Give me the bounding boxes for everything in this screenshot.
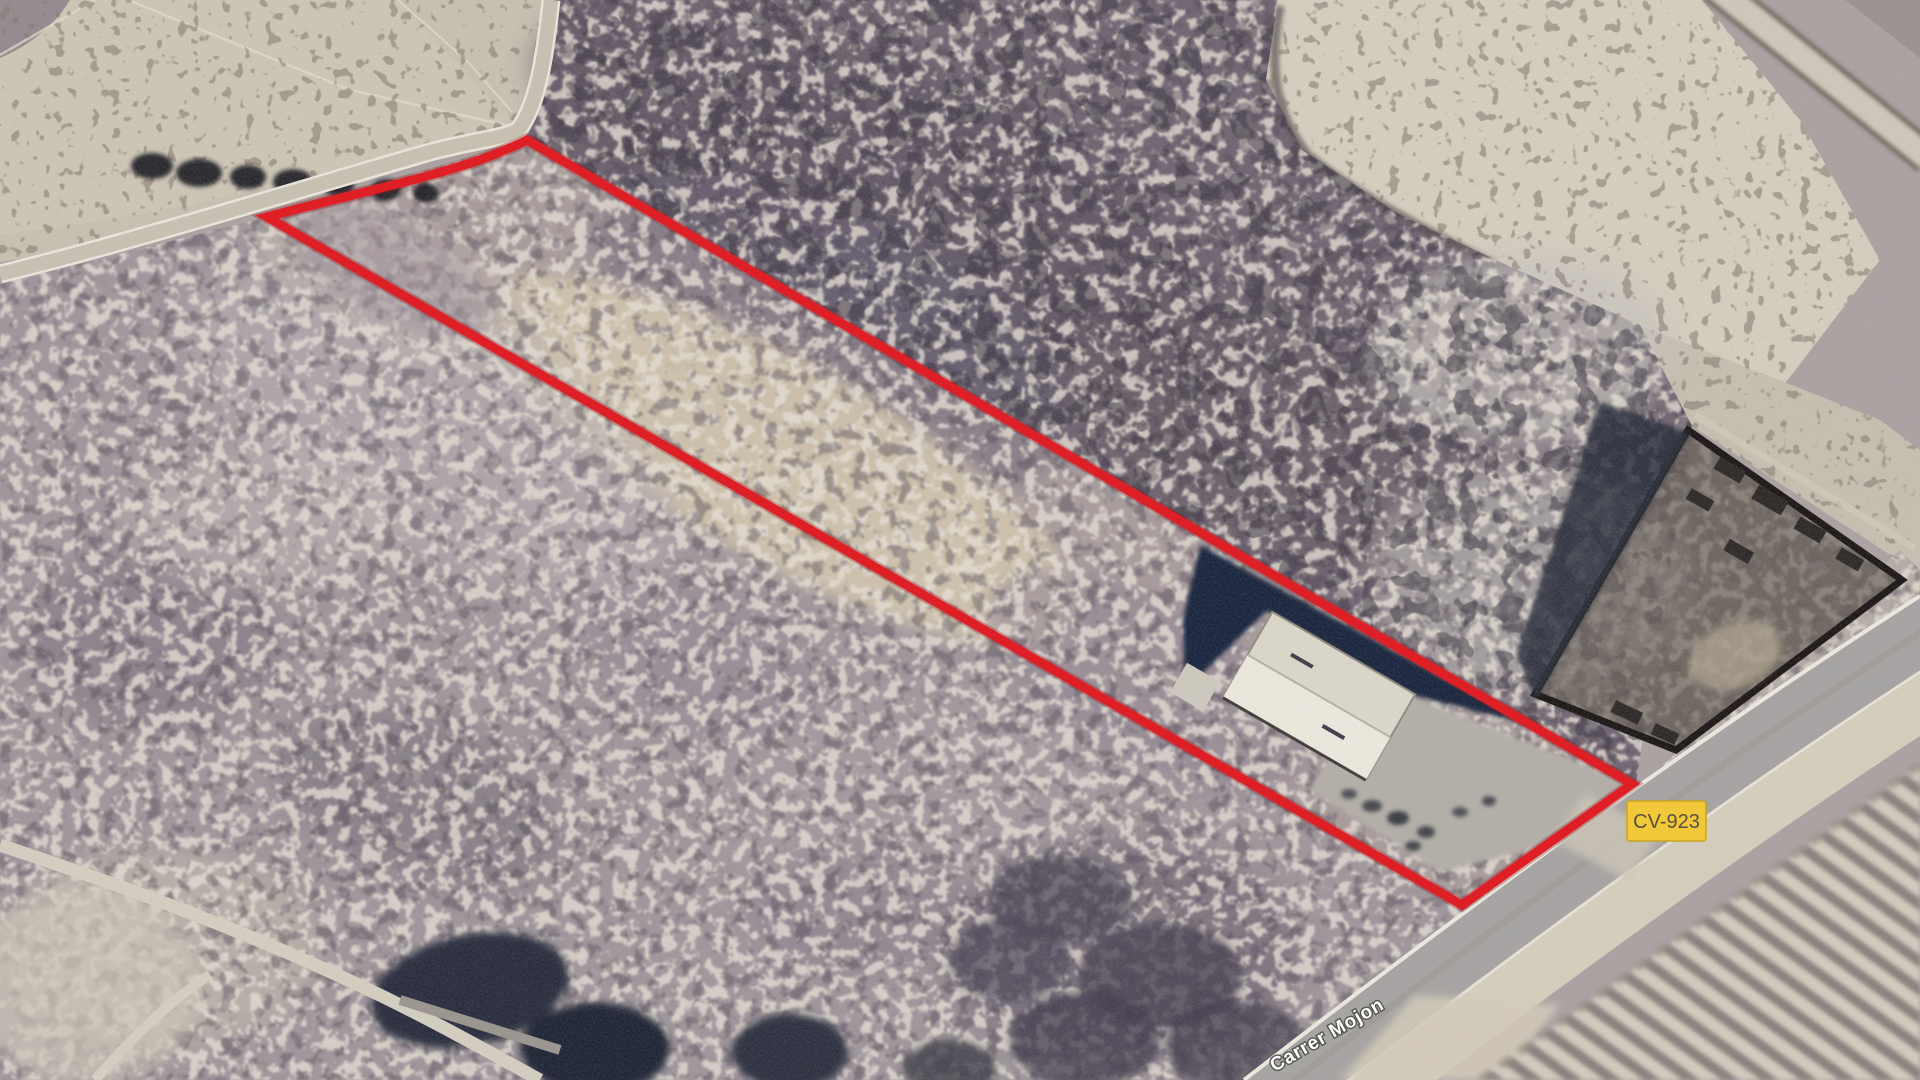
svg-text:CV-923: CV-923 (1633, 811, 1700, 833)
